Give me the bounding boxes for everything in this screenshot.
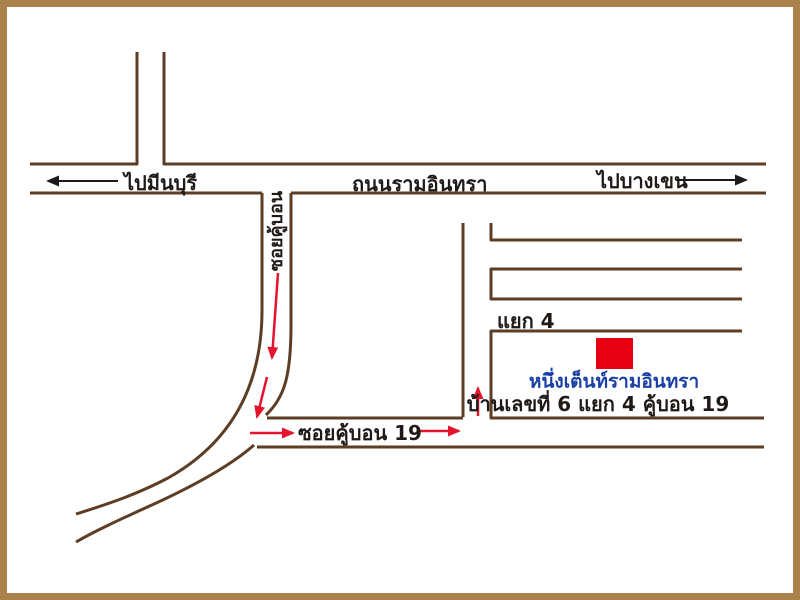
route-arrow-down-left-icon — [257, 377, 267, 417]
road-soi-kubon-inner-edge-curve — [76, 193, 262, 514]
place-name: หนึ่งเต็นท์รามอินทรา — [529, 372, 699, 393]
label-soi-kubon-vertical: ซอยคู้บอน — [267, 191, 287, 271]
label-road-ramindra: ถนนรามอินทรา — [352, 173, 487, 195]
place-address: บ้านเลขที่ 6 แยก 4 คู้บอน 19 — [467, 393, 730, 415]
road-ramindra-top-edge-left-with-north-branch — [30, 52, 137, 164]
route-arrow-down-icon — [272, 273, 278, 358]
road-soi-kubon-outer-edge-lower — [76, 445, 254, 542]
label-to-bangkhen: ไปบางเขน — [597, 170, 688, 192]
label-intersection-4: แยก 4 — [497, 310, 555, 332]
label-soi-kubon-19: ซอยคู้บอน 19 — [298, 422, 422, 444]
road-ramindra-top-edge-right-with-north-branch — [164, 52, 766, 164]
location-marker — [596, 338, 633, 369]
location-map: ไปมีนบุรี ถนนรามอินทรา ไปบางเขน ซอยคู้บอ… — [0, 0, 800, 600]
road-side-street-block2 — [491, 269, 742, 299]
road-side-street-row1 — [491, 223, 742, 240]
label-to-minburi: ไปมีนบุรี — [124, 172, 197, 194]
map-roads-graphic — [0, 0, 800, 600]
